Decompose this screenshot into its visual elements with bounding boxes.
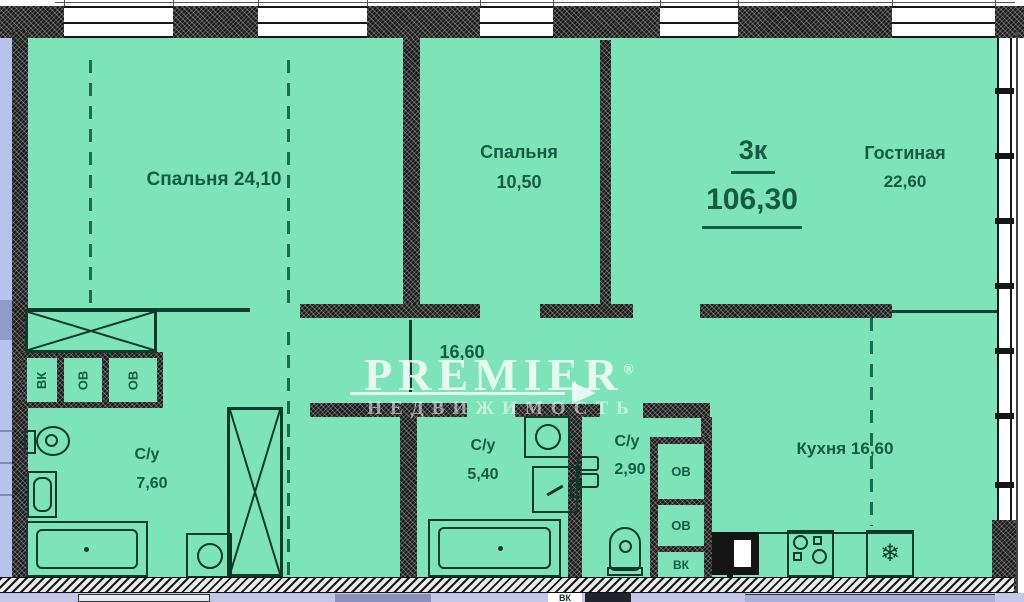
sink-icon — [577, 456, 599, 471]
exterior-wall-bottom — [0, 577, 1014, 593]
kitchen-sink-icon — [734, 540, 751, 567]
area-label: 2,90 — [614, 462, 645, 479]
total-area-label: 106,30 — [706, 184, 798, 216]
window — [258, 6, 367, 38]
toilet-icon — [45, 434, 58, 447]
washing-machine-icon — [197, 543, 223, 569]
duct-cell: ВК — [658, 552, 704, 578]
bathtub-icon — [438, 527, 551, 569]
watermark-subtitle: НЕДВИЖИМОСТЬ — [367, 398, 636, 420]
toilet-icon — [619, 540, 632, 553]
wall-segment — [173, 6, 258, 38]
wall-segment — [701, 417, 712, 439]
window — [480, 6, 553, 38]
duct-cell: ОВ — [64, 358, 102, 402]
window-mullion-tick — [995, 413, 1014, 419]
toilet-icon — [607, 567, 643, 576]
adjacent-area-left-detail — [0, 462, 12, 464]
stove-icon — [793, 552, 802, 561]
room-label: С/у — [615, 434, 640, 451]
dashed-zone-line — [870, 318, 873, 526]
area-label: 10,50 — [496, 173, 541, 192]
wall-segment — [367, 6, 480, 38]
wardrobe-x-icon — [227, 407, 283, 577]
washing-machine-icon — [535, 424, 561, 450]
window — [892, 6, 995, 38]
wall-segment — [540, 304, 633, 318]
wall-segment — [700, 304, 892, 318]
apartment-type-label: 3к — [739, 136, 768, 164]
wall-segment — [643, 403, 710, 418]
underline — [702, 226, 802, 229]
stove-icon — [812, 549, 827, 564]
duct-label: ОВ — [671, 464, 691, 479]
wardrobe-x-icon — [25, 309, 157, 353]
dashed-zone-line — [287, 332, 290, 575]
lower-floor-fixture — [335, 594, 431, 602]
window-mullion-tick — [995, 283, 1014, 289]
room-label: С/у — [135, 447, 160, 464]
window-mullion-tick — [995, 482, 1014, 488]
stove-icon — [813, 536, 822, 545]
window-mullion-tick — [995, 88, 1014, 94]
sink-icon — [577, 473, 599, 488]
toilet-icon — [24, 430, 36, 454]
watermark-rule — [350, 392, 565, 395]
fridge-icon: ❄ — [866, 530, 914, 577]
wall-segment — [300, 304, 480, 318]
window-mullion-tick — [995, 348, 1014, 354]
wall-thin — [892, 310, 997, 313]
lower-floor-fixture — [78, 594, 210, 602]
lower-floor-fixture — [585, 593, 631, 602]
dashed-zone-line — [287, 60, 290, 305]
dimension-line — [1016, 30, 1018, 602]
shaft-duct-block: ОВ ОВ ВК — [650, 437, 712, 583]
floor-plan: ВК ОВ ОВ ОВ ОВ ВК — [0, 0, 1024, 602]
adjacent-area-left-detail — [0, 494, 12, 496]
duct-cell: ОВ — [658, 444, 704, 499]
room-label: Кухня 16,60 — [797, 440, 894, 458]
wall-segment — [600, 40, 611, 310]
window-mullion-tick — [995, 218, 1014, 224]
duct-label: ОВ — [126, 370, 141, 390]
wall-segment — [400, 403, 417, 578]
window-mullion-tick — [995, 153, 1014, 159]
bathtub-drain — [84, 547, 89, 552]
duct-cell: ВК — [27, 358, 57, 402]
duct-cell: ОВ — [658, 505, 704, 546]
room-label: Спальня 24,10 — [147, 170, 282, 190]
adjacent-area-left-detail — [0, 430, 12, 432]
wall-segment — [403, 38, 420, 318]
area-label: 7,60 — [136, 476, 167, 493]
room-label: Гостиная — [864, 144, 945, 163]
wall-segment — [553, 6, 660, 38]
stove-icon — [793, 535, 808, 550]
lower-floor-duct-label: ВК — [548, 593, 582, 602]
room-label: С/у — [471, 438, 496, 455]
wall-segment — [0, 6, 64, 38]
snowflake-icon: ❄ — [880, 539, 900, 568]
bathtub-drain — [498, 546, 503, 551]
duct-cell: ОВ — [109, 358, 157, 402]
lower-floor-fixture — [745, 594, 995, 602]
dimension-line — [55, 2, 1015, 3]
dashed-zone-line — [89, 60, 92, 305]
facade-glazing — [997, 38, 1012, 520]
area-label: 5,40 — [467, 467, 498, 484]
wall-segment — [12, 30, 28, 578]
wall-segment — [995, 6, 1024, 38]
duct-label: ВК — [34, 371, 49, 388]
registered-mark: ® — [623, 363, 639, 378]
window — [660, 6, 738, 38]
duct-label: ОВ — [76, 370, 91, 390]
underline — [731, 171, 775, 174]
area-label: 22,60 — [884, 173, 927, 191]
wall-segment — [738, 6, 892, 38]
room-label: Спальня — [480, 143, 558, 162]
sink-icon — [33, 477, 52, 512]
window — [64, 6, 173, 38]
adjacent-area-left-detail — [0, 300, 12, 340]
duct-label: ОВ — [671, 518, 691, 533]
shaft-duct-block: ВК ОВ ОВ — [22, 352, 163, 408]
duct-label: ВК — [673, 558, 689, 572]
